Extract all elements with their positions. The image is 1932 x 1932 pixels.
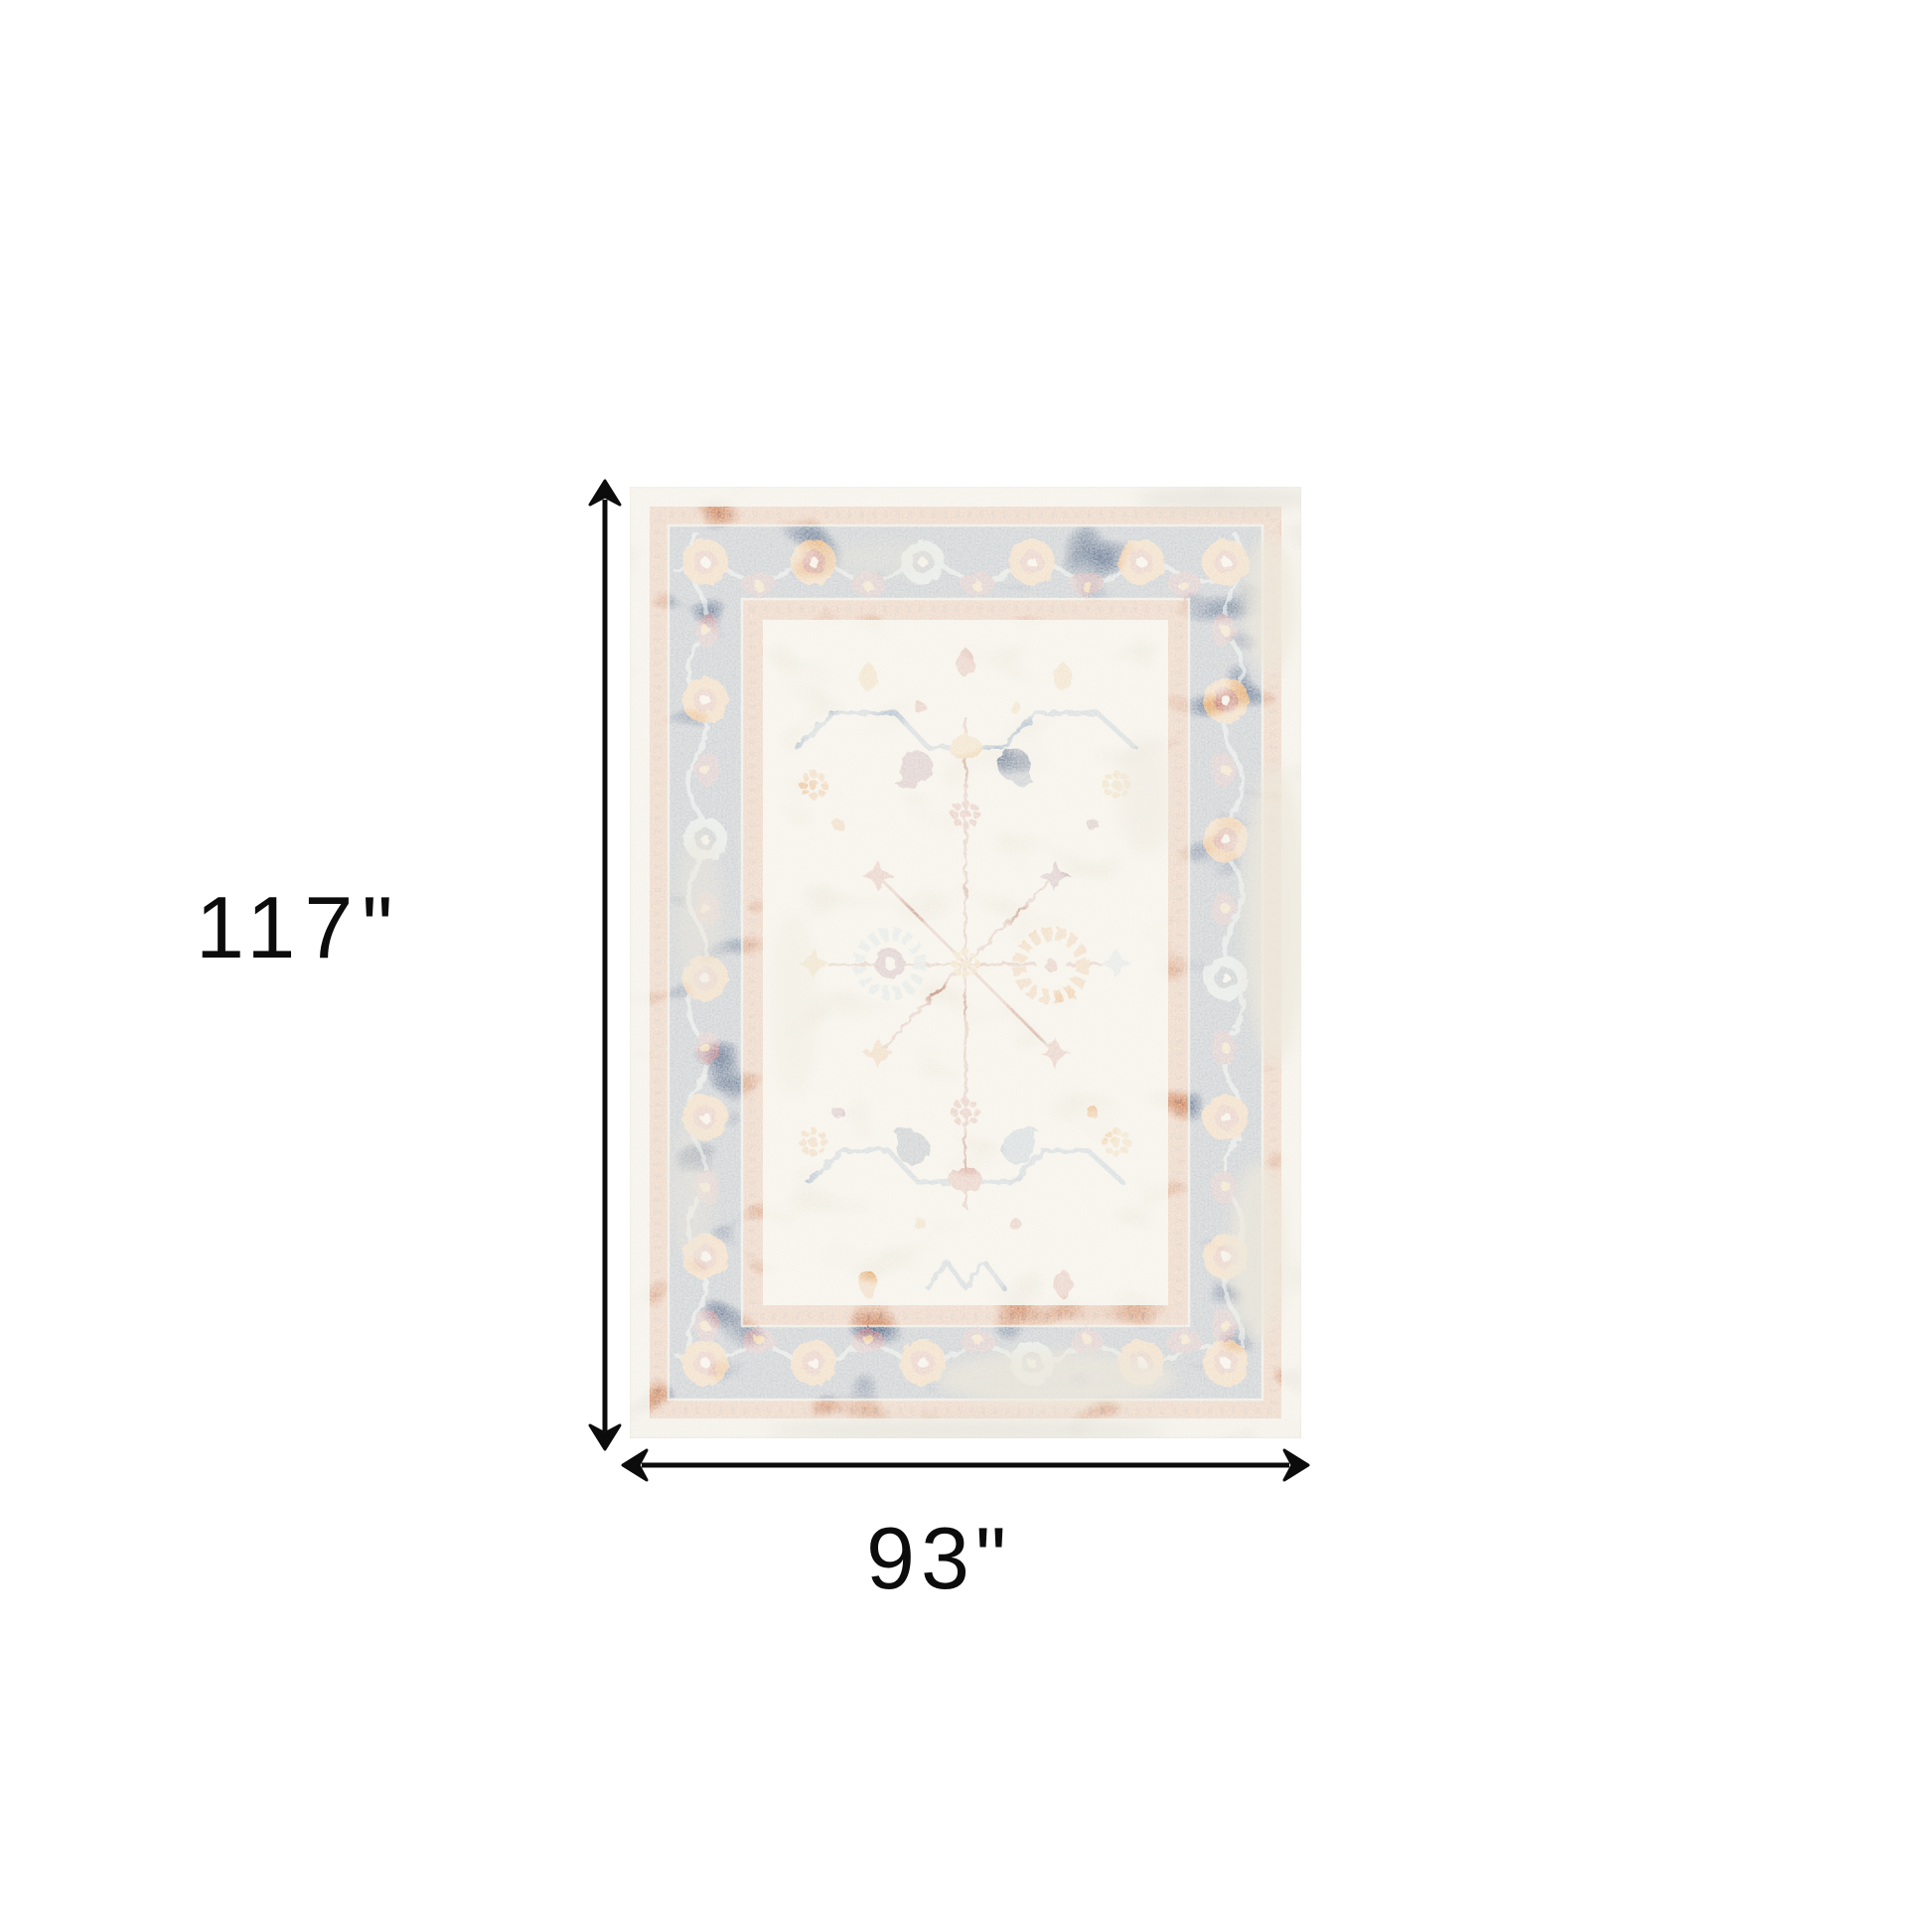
rug-distress-overlay — [630, 487, 1301, 1438]
width-dimension-label: 93" — [866, 1515, 1012, 1602]
height-dimension-arrow-icon — [590, 481, 620, 1449]
rug-photo — [630, 487, 1301, 1438]
height-dimension-label: 117" — [196, 884, 402, 971]
width-dimension-arrow-icon — [623, 1450, 1308, 1480]
product-dimension-diagram: 117" 93" — [0, 0, 1932, 1932]
